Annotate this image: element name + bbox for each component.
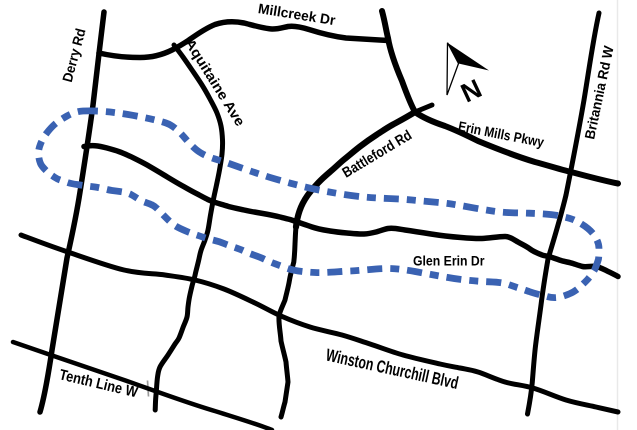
svg-text:Glen Erin Dr: Glen Erin Dr	[413, 253, 485, 269]
svg-text:Erin Mills Pkwy: Erin Mills Pkwy	[457, 118, 546, 150]
svg-text:N: N	[456, 73, 486, 108]
svg-text:Derry Rd: Derry Rd	[59, 27, 89, 84]
